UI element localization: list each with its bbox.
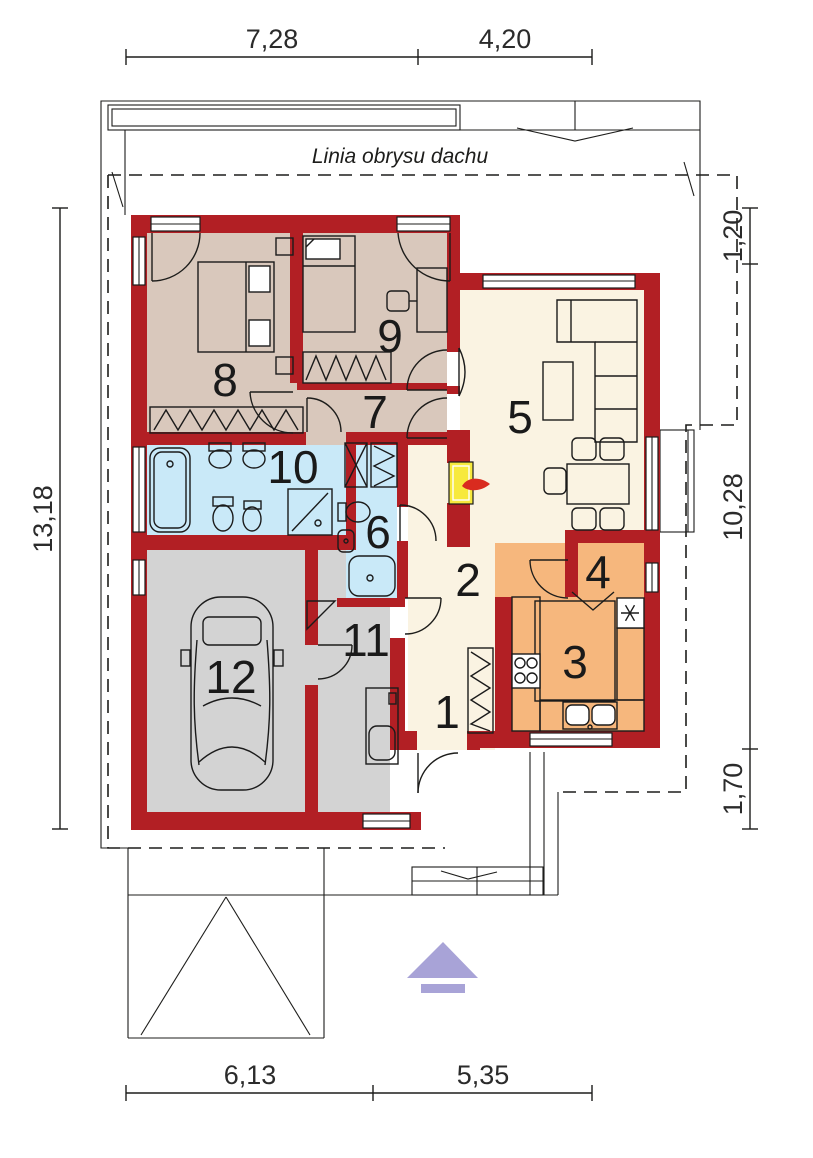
driveway — [128, 848, 324, 1038]
hob-icon — [512, 654, 540, 688]
window-bedroom8-top — [151, 217, 200, 231]
dim-left-total: 13,18 — [28, 485, 58, 553]
downspout-mark-right — [684, 162, 694, 196]
room-kitchen-number: 3 — [562, 636, 588, 688]
roof-slope-chevron-porch — [441, 871, 497, 879]
room-entry-number: 1 — [434, 686, 460, 738]
room-bedroom8-number: 8 — [212, 354, 238, 406]
dimension-left: 13,18 — [28, 208, 68, 829]
dimension-top: 7,28 4,20 — [126, 24, 592, 65]
room-wc-number: 6 — [365, 506, 391, 558]
fridge-snowflake-icon — [617, 598, 644, 628]
dim-bottom-right: 5,35 — [457, 1060, 510, 1090]
window-living-top — [483, 275, 635, 288]
dim-right-middle: 10,28 — [718, 473, 748, 541]
dim-right-bottom: 1,70 — [718, 763, 748, 816]
window-living-right — [646, 437, 658, 530]
room-hall-number: 7 — [362, 386, 388, 438]
room-utility-number: 11 — [342, 614, 390, 666]
window-kitchen-bottom — [530, 733, 612, 746]
dim-right-top: 1,20 — [718, 210, 748, 263]
dim-top-left: 7,28 — [246, 24, 299, 54]
window-garage-left — [133, 560, 145, 595]
room-living-number: 5 — [507, 391, 533, 443]
window-bedroom9-top — [397, 217, 450, 231]
dimension-right: 1,20 10,28 1,70 — [718, 208, 758, 829]
room-bathroom-number: 10 — [267, 441, 318, 493]
room-garage-number: 12 — [205, 651, 256, 703]
downspout-mark-left — [112, 172, 123, 207]
dimension-bottom: 6,13 5,35 — [126, 1060, 592, 1101]
room-bedroom9-number: 9 — [377, 310, 403, 362]
entry-step — [412, 867, 543, 895]
floor-plan-drawing: Linia obrysu dachu — [0, 0, 813, 1158]
dim-top-right: 4,20 — [479, 24, 532, 54]
room-bathroom10-floor — [147, 445, 356, 535]
terrace-outline — [660, 430, 694, 532]
dim-bottom-left: 6,13 — [224, 1060, 277, 1090]
roof-outline-label: Linia obrysu dachu — [312, 145, 489, 168]
room-corridor-number: 2 — [455, 554, 481, 606]
room-pantry-number: 4 — [585, 546, 611, 598]
entrance-arrow-icon — [407, 942, 478, 993]
floor-plan-page: Linia obrysu dachu — [0, 0, 813, 1158]
window-bedroom8-left — [133, 237, 145, 285]
door-entrance — [418, 753, 458, 793]
vent-garage-bottom — [363, 814, 410, 828]
window-bathroom-left — [133, 447, 145, 532]
window-pantry-right — [646, 563, 658, 592]
